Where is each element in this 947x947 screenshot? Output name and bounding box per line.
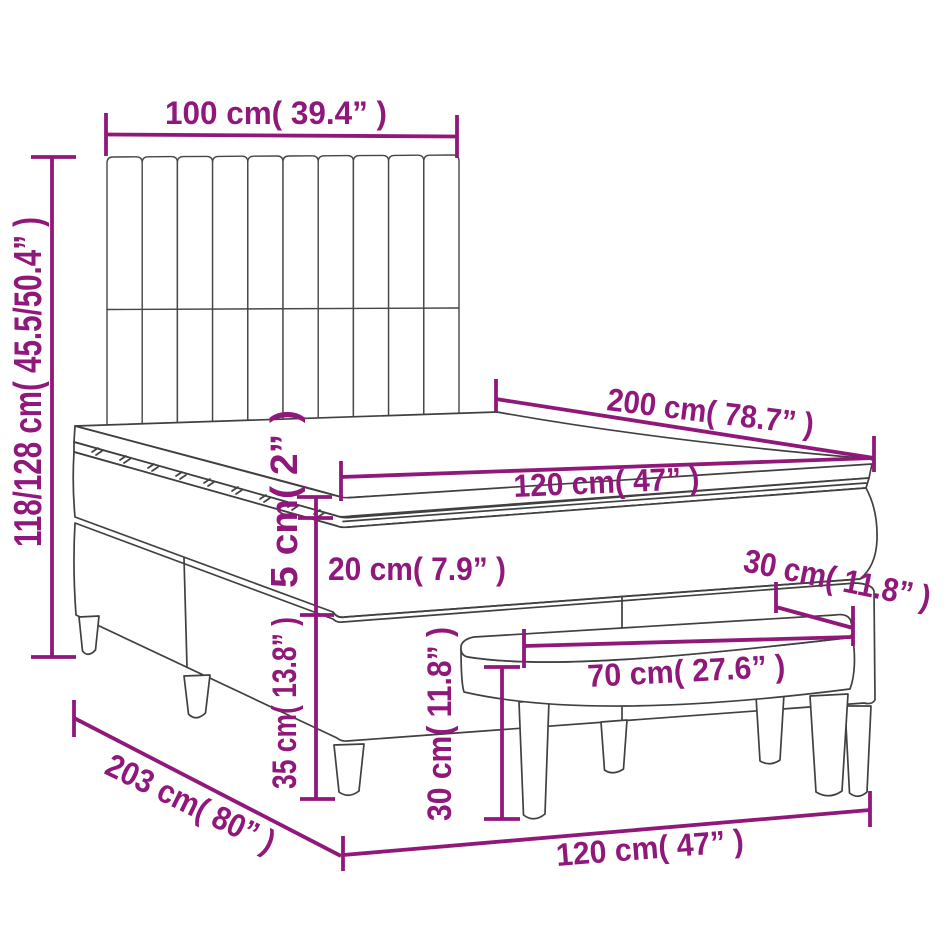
svg-text:30 cm( 11.8” ): 30 cm( 11.8” ): [421, 627, 459, 821]
svg-text:5 cm( 2” ): 5 cm( 2” ): [264, 410, 306, 588]
svg-text:100 cm( 39.4” ): 100 cm( 39.4” ): [165, 95, 387, 131]
svg-text:35 cm( 13.8” ): 35 cm( 13.8” ): [266, 617, 304, 789]
svg-text:118/128 cm( 45.5/50.4” ): 118/128 cm( 45.5/50.4” ): [7, 217, 50, 547]
svg-text:20 cm( 7.9” ): 20 cm( 7.9” ): [328, 551, 506, 587]
